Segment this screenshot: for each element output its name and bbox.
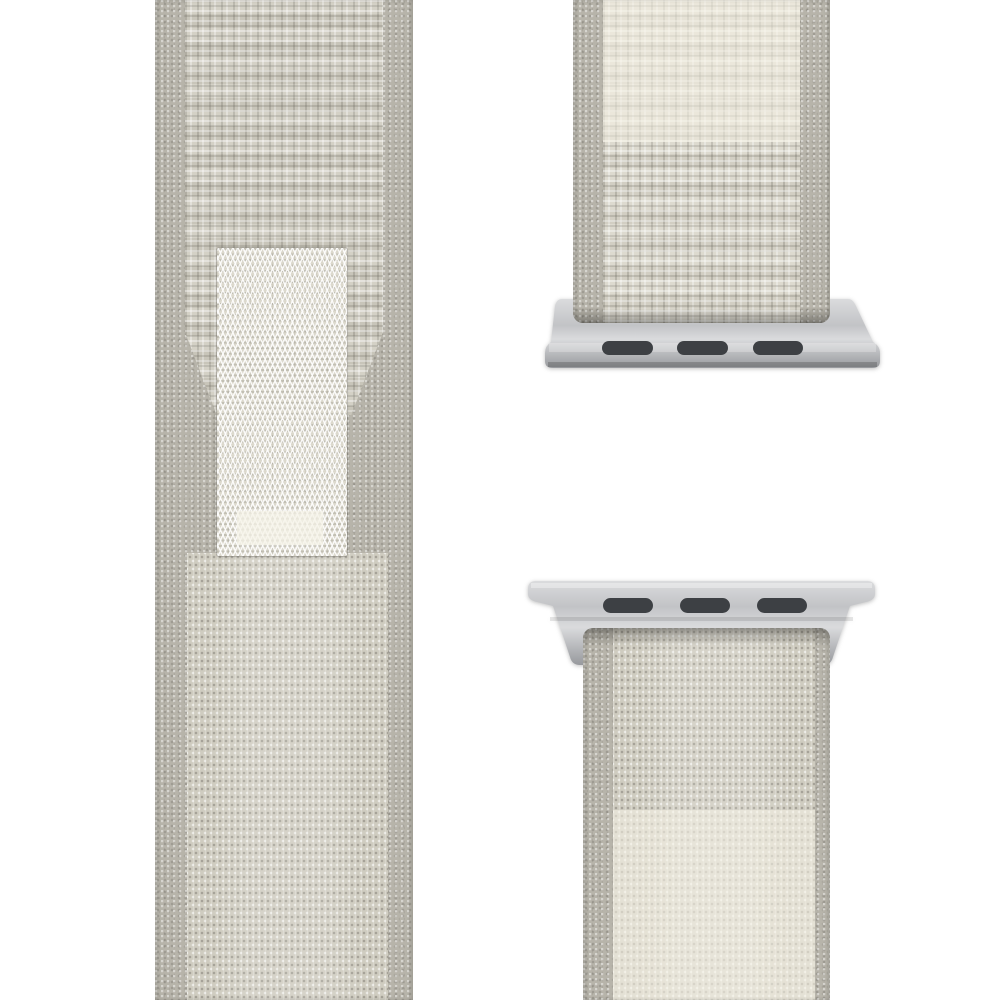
hook-fastener-tab (217, 248, 347, 556)
adapter-slot (757, 598, 807, 613)
right-strap-bottom-piece (528, 581, 875, 1000)
right-top-cream-patch (603, 0, 800, 142)
adapter-top-bottom-edge (548, 362, 877, 367)
left-strap (155, 0, 413, 1000)
watch-band-product-photo (0, 0, 1000, 1000)
adapter-bottom-top-highlight (531, 583, 872, 588)
adapter-slot (753, 341, 803, 355)
adapter-slot (680, 598, 730, 613)
right-strap-top-piece (545, 0, 880, 380)
adapter-slot (603, 598, 653, 613)
right-bottom-band-fabric (583, 628, 830, 1000)
adapter-slot (677, 341, 728, 355)
hook-tab-highlight-patch (237, 511, 323, 545)
adapter-bottom-shade (550, 617, 853, 621)
right-bottom-cream-patch (613, 810, 815, 1000)
right-top-band-fabric (573, 0, 830, 323)
adapter-slot (602, 341, 653, 355)
left-strap-fine-weave-panel (187, 553, 388, 1000)
